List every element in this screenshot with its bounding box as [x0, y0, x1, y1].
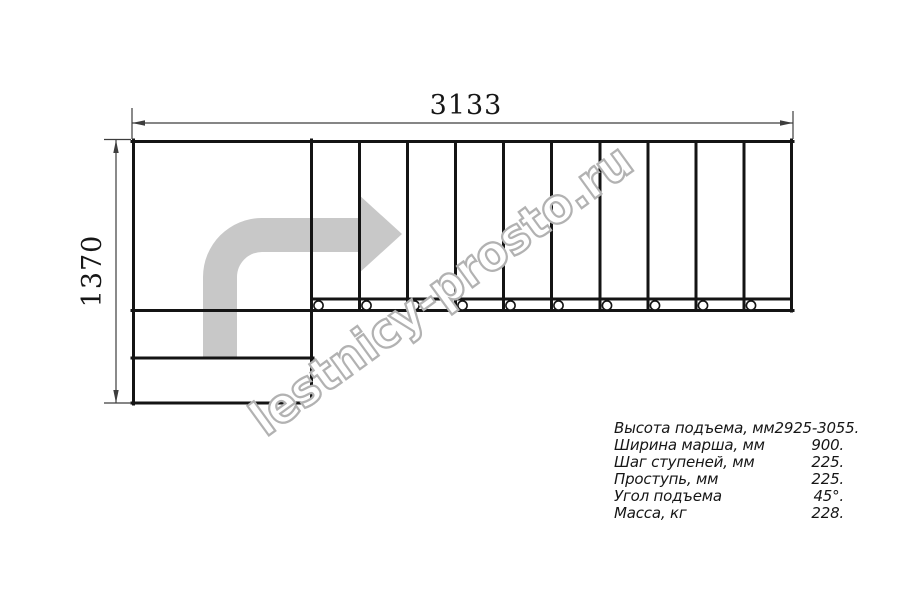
height-dimension-label: 1370	[77, 235, 108, 308]
dimension-arrowhead-right	[780, 120, 793, 125]
baluster-circle	[506, 301, 515, 310]
spec-row-lift-height: Высота подъема, мм 2925-3055.	[614, 420, 844, 437]
spec-label: Угол подъема	[614, 488, 722, 505]
baluster-circle	[698, 301, 707, 310]
dimension-height-lines	[104, 140, 131, 404]
spec-value: 900.	[811, 437, 844, 454]
spec-value: 2925-3055.	[775, 420, 860, 437]
spec-label: Высота подъема, мм	[614, 420, 775, 437]
baluster-circle	[650, 301, 659, 310]
dimension-width: 3133	[132, 90, 793, 139]
dimension-arrowhead-bottom	[113, 390, 118, 403]
spec-row-rise-angle: Угол подъема 45°.	[614, 488, 844, 505]
spec-row-mass: Масса, кг 228.	[614, 505, 844, 522]
baluster-circle	[746, 301, 755, 310]
dimension-arrowhead-left	[132, 120, 145, 125]
spec-label: Проступь, мм	[614, 471, 718, 488]
spec-value: 225.	[811, 471, 844, 488]
spec-label: Масса, кг	[614, 505, 687, 522]
spec-value: 228.	[811, 505, 844, 522]
baluster-circle	[314, 301, 323, 310]
spec-label: Ширина марша, мм	[614, 437, 765, 454]
dimension-arrowhead-top	[113, 140, 118, 153]
watermark-text: lestnicy-prosto.ru	[240, 133, 643, 448]
spec-row-flight-width: Ширина марша, мм 900.	[614, 437, 844, 454]
spec-label: Шаг ступеней, мм	[614, 454, 755, 471]
dimension-height: 1370	[77, 140, 131, 404]
spec-row-tread: Проступь, мм 225.	[614, 471, 844, 488]
staircase-drawing-page: 3133 1370 lestnicy-prosto.ru Высота подъ…	[0, 0, 900, 600]
spec-value: 45°.	[813, 488, 844, 505]
specs-table: Высота подъема, мм 2925-3055. Ширина мар…	[614, 420, 844, 521]
spec-row-step-pitch: Шаг ступеней, мм 225.	[614, 454, 844, 471]
baluster-circle	[554, 301, 563, 310]
width-dimension-label: 3133	[430, 90, 503, 121]
spec-value: 225.	[811, 454, 844, 471]
baluster-circle	[602, 301, 611, 310]
